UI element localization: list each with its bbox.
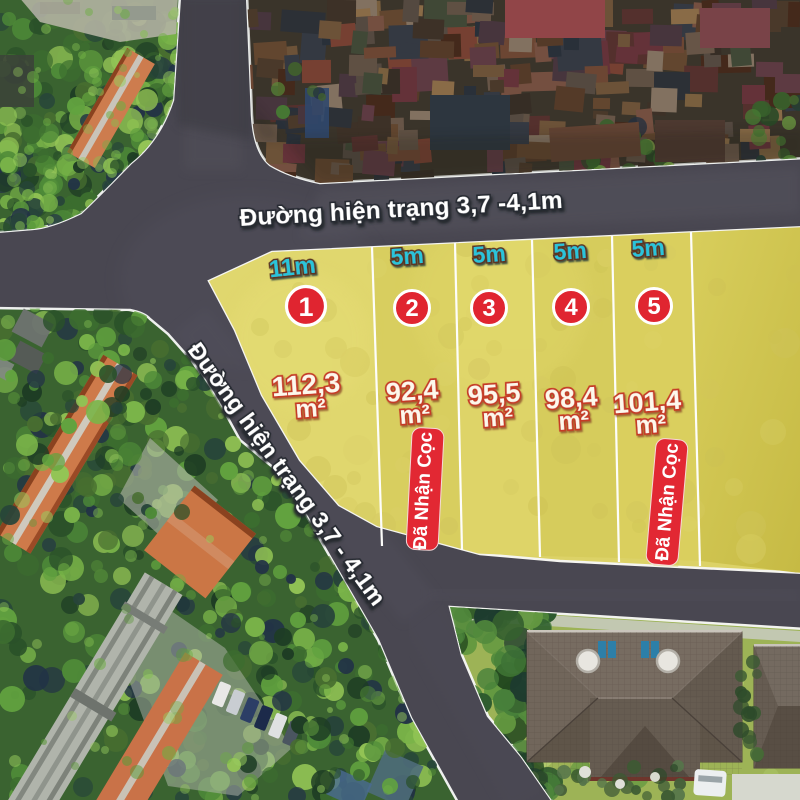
svg-text:5: 5 (647, 293, 660, 320)
svg-text:5m: 5m (472, 240, 507, 268)
svg-text:m²: m² (558, 406, 590, 436)
svg-text:1: 1 (298, 292, 313, 322)
svg-text:m²: m² (399, 400, 431, 430)
svg-text:4: 4 (564, 294, 578, 321)
svg-text:11m: 11m (268, 252, 317, 284)
svg-text:5m: 5m (553, 237, 588, 265)
svg-text:5m: 5m (390, 242, 425, 270)
svg-text:m²: m² (294, 394, 326, 424)
svg-text:3: 3 (482, 295, 495, 322)
svg-text:m²: m² (635, 410, 667, 440)
svg-text:m²: m² (482, 403, 514, 433)
svg-text:2: 2 (405, 295, 418, 322)
svg-text:5m: 5m (631, 234, 666, 262)
